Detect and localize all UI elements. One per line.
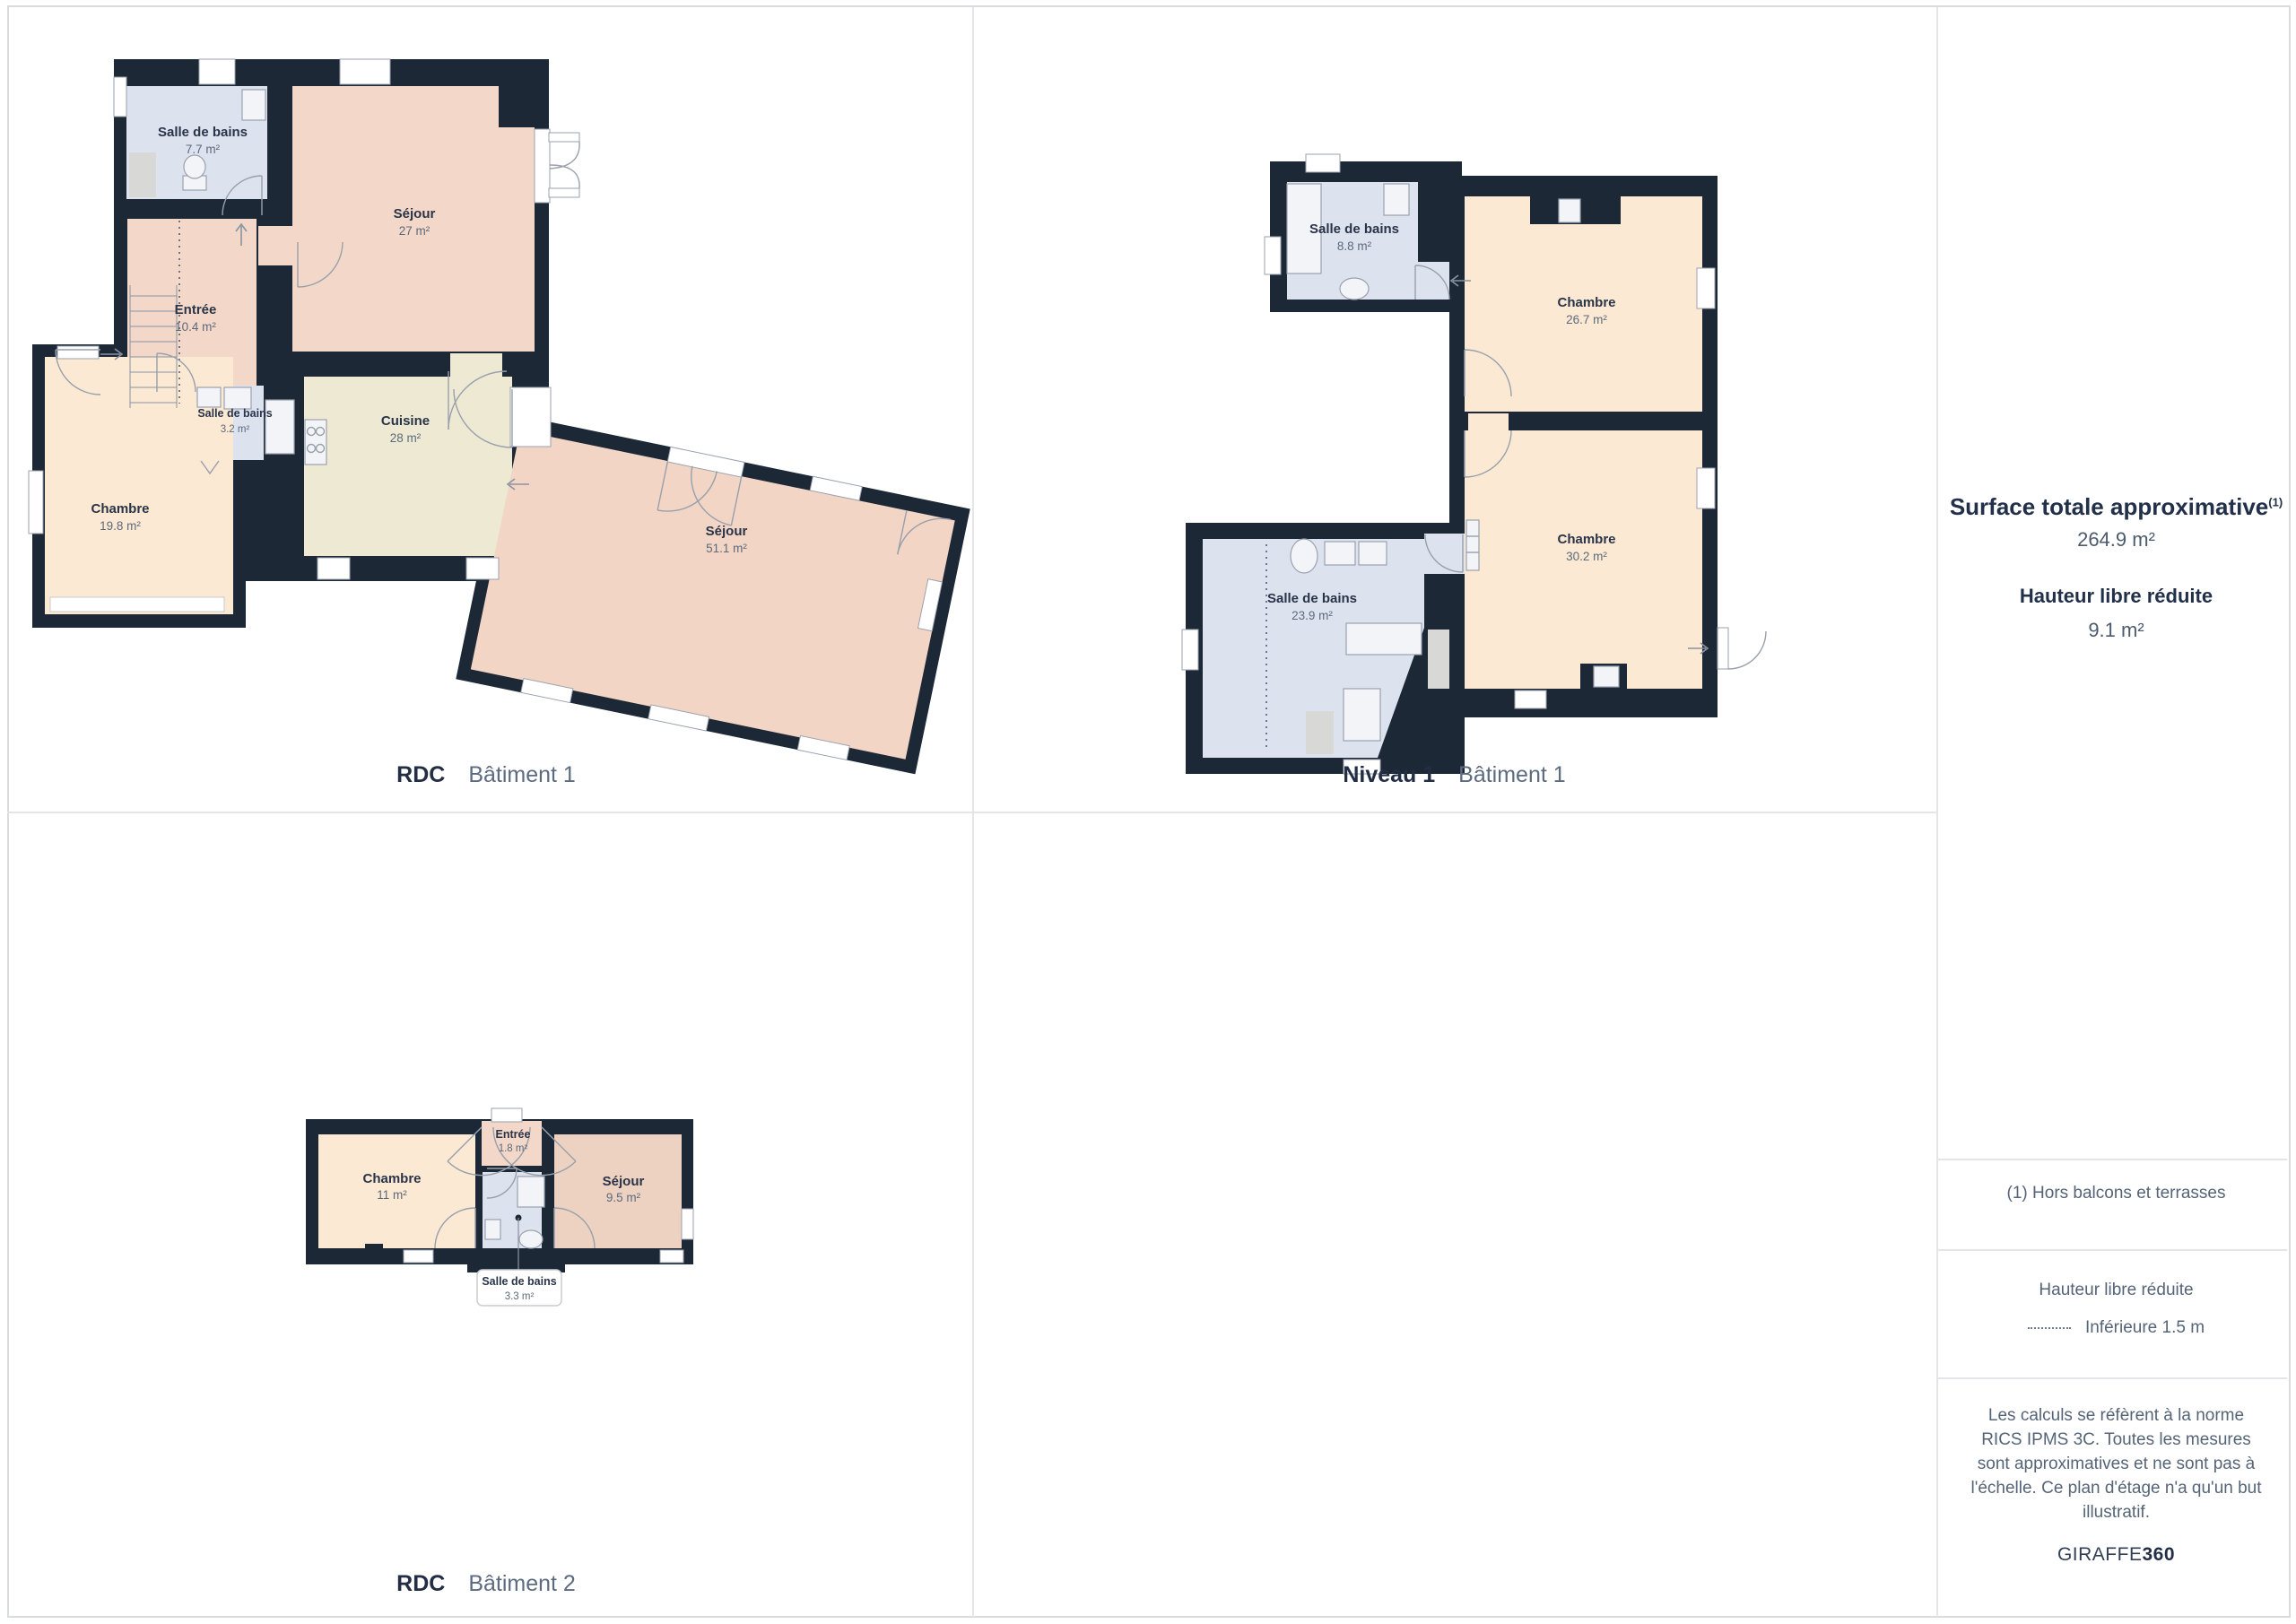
- label-bath-area: 3.3 m²: [505, 1291, 535, 1302]
- brand-bold: 360: [2142, 1544, 2175, 1565]
- window-bath1-left: [114, 77, 126, 117]
- plan1-title-building: Bâtiment 1: [468, 762, 576, 787]
- plan1-title-level: RDC: [396, 762, 445, 787]
- sejour1-door-leaf-1: [549, 133, 579, 142]
- label-sejour1-area: 27 m²: [399, 224, 430, 238]
- brand-regular: GIRAFFE: [2057, 1544, 2143, 1565]
- reduced-height-value: 9.1 m²: [1938, 619, 2294, 642]
- window-chambre-bottom: [404, 1250, 433, 1263]
- label-chambre1-area: 26.7 m²: [1566, 313, 1607, 326]
- floorplan-niveau1-batiment-1: Salle de bains 8.8 m² Chambre 26.7 m² Ch…: [972, 0, 1936, 812]
- room-cuisine: [304, 377, 512, 556]
- toilet-icon: [184, 155, 205, 178]
- label-chambre1-name: Chambre: [1557, 295, 1615, 310]
- bath2-sink-2: [224, 387, 251, 409]
- bath2-bathtub: [1346, 623, 1422, 655]
- legend-row: Inférieure 1.5 m: [1938, 1318, 2294, 1338]
- bath-sink: [485, 1220, 500, 1239]
- plan2-title-building: Bâtiment 1: [1458, 762, 1566, 787]
- label-sejour-name: Séjour: [603, 1174, 645, 1189]
- label-entree-area: 10.4 m²: [175, 320, 216, 334]
- label-entree-area: 1.8 m²: [499, 1143, 528, 1154]
- label-bath2-area: 23.9 m²: [1291, 609, 1333, 622]
- radiator-icon: [1466, 520, 1479, 570]
- bath1-sink: [1384, 184, 1409, 215]
- chambre2-sink-icon: [1594, 666, 1619, 687]
- floorplan-rdc-batiment-2: Salle de bains 3.3 m² Chambre 11 m² Entr…: [0, 812, 972, 1624]
- label-chambre-area: 19.8 m²: [100, 519, 141, 533]
- bath1-toilet: [1340, 278, 1369, 300]
- plan1-title: RDCBâtiment 1: [0, 762, 972, 788]
- label-entree-name: Entrée: [175, 302, 217, 317]
- label-bath1-area: 7.7 m²: [186, 143, 221, 156]
- dotted-line-icon: [2028, 1327, 2071, 1329]
- bath-toilet: [519, 1230, 543, 1248]
- window-cuisine-1: [317, 558, 350, 579]
- label-chambre2-area: 30.2 m²: [1566, 550, 1607, 563]
- plan2-title-level: Niveau 1: [1343, 762, 1435, 787]
- exit-door-leaf: [1718, 628, 1728, 669]
- window-top-1: [199, 59, 235, 84]
- bath2-toilet: [1291, 539, 1318, 573]
- hallway: [1418, 262, 1449, 300]
- chambre-door-gap: [57, 346, 99, 359]
- label-sejour1-name: Séjour: [394, 206, 436, 221]
- window-chambre2-right: [1697, 468, 1715, 508]
- window-bath1-left: [1265, 237, 1281, 274]
- bath2-sink-1: [1325, 542, 1355, 565]
- bath2-sink-1: [197, 387, 221, 407]
- footnote: (1) Hors balcons et terrasses: [1938, 1184, 2294, 1203]
- bath2-shower: [1344, 689, 1380, 741]
- sejour1-notch: [499, 86, 536, 127]
- label-sejour2-area: 51.1 m²: [706, 542, 747, 555]
- plan2-title: Niveau 1Bâtiment 1: [972, 762, 1936, 788]
- label-cuisine-area: 28 m²: [390, 431, 422, 445]
- bath1-cabinet: [129, 152, 156, 197]
- window-cuisine-2: [466, 558, 499, 579]
- label-chambre-name: Chambre: [91, 501, 149, 517]
- window-bath1-top: [1306, 154, 1340, 172]
- label-chambre-area: 11 m²: [377, 1188, 407, 1202]
- chambre-bottom-notch: [365, 1244, 383, 1263]
- surface-total-footnote-ref: (1): [2268, 495, 2283, 508]
- label-sejour-area: 9.5 m²: [606, 1191, 641, 1204]
- bath2-column: [1428, 630, 1449, 689]
- disclaimer-wrap: Les calculs se réfèrent à la norme RICS …: [1938, 1404, 2294, 1525]
- cooktop-icon: [305, 420, 326, 465]
- plan3-title-building: Bâtiment 2: [468, 1571, 576, 1596]
- legend-title: Hauteur libre réduite: [1938, 1281, 2294, 1300]
- window-chambre-left: [29, 471, 43, 534]
- sidebar-divider-3: [1938, 1377, 2287, 1379]
- plan3-title: RDCBâtiment 2: [0, 1571, 972, 1597]
- surface-total-value: 264.9 m²: [1938, 528, 2294, 551]
- label-bath1-name: Salle de bains: [1309, 221, 1399, 237]
- label-bath1-name: Salle de bains: [158, 125, 248, 140]
- bath1-sink-icon: [242, 90, 265, 120]
- sejour1-door-leaf-2: [549, 188, 579, 197]
- disclaimer-text: Les calculs se réfèrent à la norme RICS …: [1969, 1404, 2265, 1525]
- reduced-height-title: Hauteur libre réduite: [1938, 585, 2294, 608]
- window-sejour-bottom: [660, 1250, 683, 1263]
- label-bath2-area: 3.2 m²: [221, 424, 250, 435]
- window-chambre2-bottom: [1515, 690, 1546, 708]
- entrance-step: [491, 1108, 522, 1122]
- sidebar-divider-1: [1938, 1159, 2287, 1160]
- cuisine-doorway: [450, 353, 502, 378]
- label-entree-name: Entrée: [496, 1128, 531, 1141]
- room-sejour2: [471, 430, 955, 760]
- surface-total-title: Surface totale approximative(1): [1938, 493, 2294, 521]
- chambre-doorway: [1468, 413, 1509, 430]
- bath2-sink-2: [1359, 542, 1387, 565]
- label-bath1-area: 8.8 m²: [1337, 239, 1372, 253]
- label-bath2-name: Salle de bains: [197, 407, 272, 420]
- entree-doorway: [258, 226, 292, 265]
- label-cuisine-name: Cuisine: [381, 413, 430, 429]
- label-chambre2-name: Chambre: [1557, 532, 1615, 547]
- bath-shower: [517, 1177, 544, 1207]
- label-bath-name: Salle de bains: [482, 1275, 556, 1288]
- label-bath2-name: Salle de bains: [1267, 591, 1357, 606]
- label-sejour2-name: Séjour: [706, 524, 748, 539]
- legend-item: Inférieure 1.5 m: [2085, 1318, 2205, 1338]
- bath2-cabinet: [1306, 711, 1334, 754]
- plan3-title-level: RDC: [396, 1571, 445, 1596]
- window-sejour-right: [682, 1209, 693, 1239]
- window-bath2-left: [1182, 630, 1198, 670]
- floorplan-rdc-batiment-1: Salle de bains 7.7 m² Séjour 27 m² Entré…: [0, 0, 972, 812]
- label-chambre-name: Chambre: [362, 1171, 421, 1186]
- sejour1-door-gap: [535, 129, 550, 203]
- chambre1-toilet-icon: [1559, 199, 1580, 222]
- window-chambre1-right: [1697, 268, 1715, 308]
- brand-logo: GIRAFFE360: [1938, 1544, 2294, 1566]
- sidebar-divider-2: [1938, 1249, 2287, 1251]
- floorplan-page: Salle de bains 7.7 m² Séjour 27 m² Entré…: [0, 0, 2296, 1624]
- chambre-ledge: [50, 597, 224, 612]
- window-top-2: [340, 59, 390, 84]
- cuisine-door-gap: [510, 387, 551, 447]
